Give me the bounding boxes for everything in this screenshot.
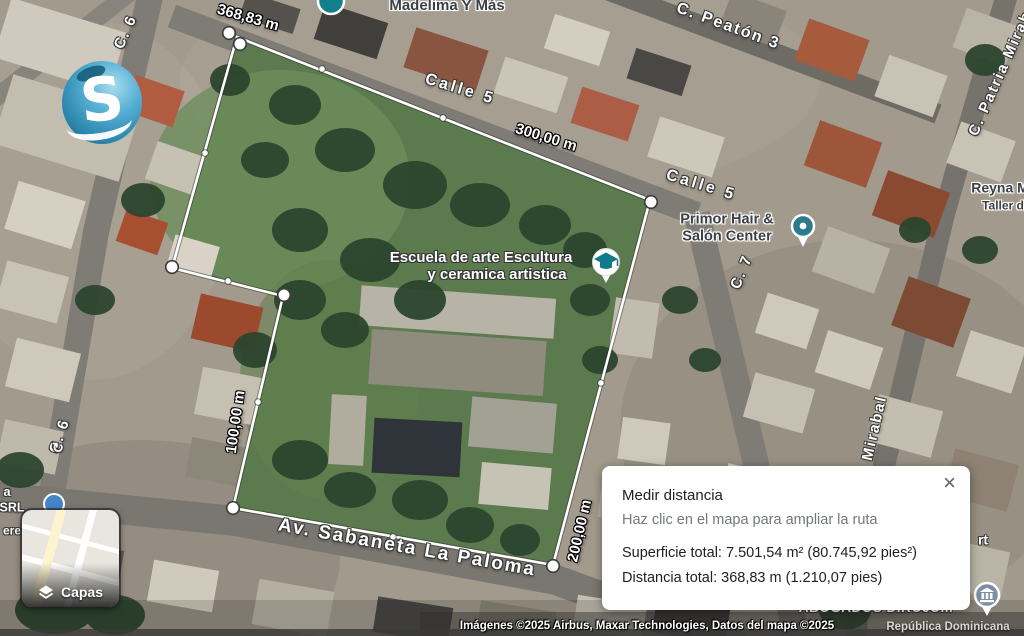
panel-title: Medir distancia <box>622 487 723 504</box>
s-logo-watermark: S <box>62 61 142 144</box>
panel-area-total: Superficie total: 7.501,54 m² (80.745,92… <box>622 545 917 561</box>
primor-pin-icon[interactable] <box>792 215 814 247</box>
map-viewport[interactable]: C. 6 C. 6 Calle 5 Calle 5 C. Peatón 3 C.… <box>0 0 1024 636</box>
poi-label-taller[interactable]: Taller d <box>982 200 1024 213</box>
poi-label-reyna[interactable]: Reyna M <box>971 181 1024 196</box>
poi-label-primor-line2[interactable]: Salón Center <box>682 229 771 244</box>
panel-distance-total: Distancia total: 368,83 m (1.210,07 pies… <box>622 570 882 586</box>
poi-label-madelima[interactable]: Madelima Y Más <box>389 0 504 14</box>
attribution-region: República Dominicana <box>886 621 1009 633</box>
close-icon[interactable]: × <box>939 468 960 498</box>
layers-label: Capas <box>61 584 103 600</box>
layers-caption: Capas <box>22 584 119 600</box>
attribution-imagery: Imágenes ©2025 Airbus, Maxar Technologie… <box>460 620 834 632</box>
layers-control[interactable]: Capas <box>22 510 119 607</box>
layers-icon <box>38 585 54 600</box>
poi-label-escuela-line2[interactable]: y ceramica artistica <box>427 267 566 283</box>
panel-hint: Haz clic en el mapa para ampliar la ruta <box>622 512 877 528</box>
poi-label-primor-line1[interactable]: Primor Hair & <box>680 212 773 227</box>
measure-distance-panel: Medir distancia Haz clic en el mapa para… <box>602 466 970 610</box>
poi-label-escuela-line1[interactable]: Escuela de arte Escultura <box>390 250 573 266</box>
institution-pin-icon[interactable] <box>975 583 999 616</box>
school-pin-icon[interactable] <box>593 249 620 284</box>
madelima-pin-icon[interactable] <box>318 0 344 14</box>
